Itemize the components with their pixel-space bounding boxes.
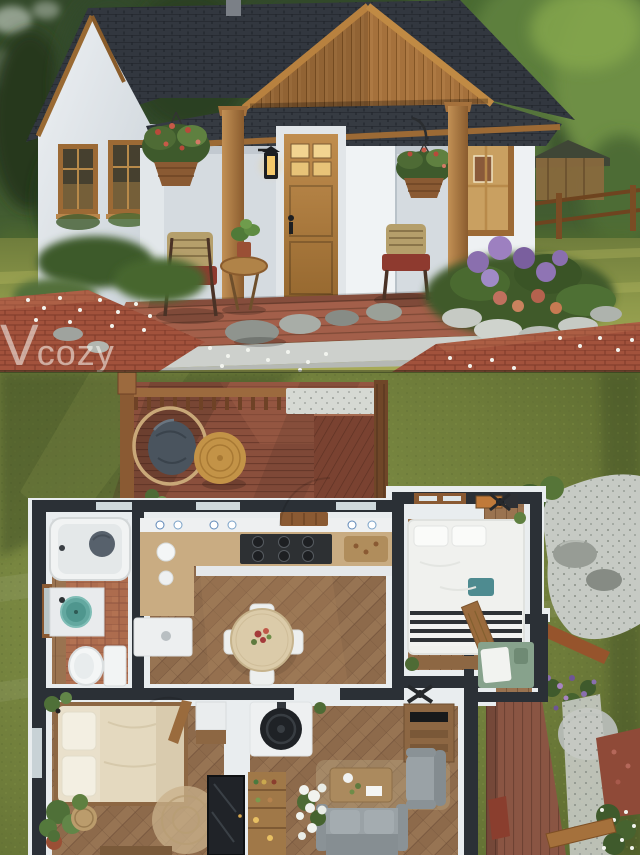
- floor-plan-render: [0, 372, 640, 855]
- bumpout-roof: [314, 414, 378, 506]
- exterior-photo: Vcozy: [0, 0, 640, 372]
- exterior-scene: [0, 0, 640, 372]
- sofa: [316, 804, 408, 855]
- section-divider: [0, 370, 640, 373]
- chimney: [226, 0, 241, 16]
- foot-chest: [100, 846, 172, 855]
- kettle: [157, 543, 175, 561]
- screenshot-root: Vcozy: [0, 0, 640, 855]
- hanging-egg-chair: [134, 408, 206, 484]
- deck-post: [118, 372, 136, 394]
- front-door: [276, 126, 346, 308]
- bed-top: [408, 520, 524, 654]
- entry-alcove: [478, 642, 534, 688]
- coffee-table: [330, 768, 392, 802]
- armchair: [406, 748, 446, 809]
- wardrobe: [196, 702, 226, 730]
- deck-fence: [374, 380, 388, 506]
- floor-plan-house: [28, 478, 550, 855]
- foot-bench: [414, 656, 488, 669]
- rear-deck: [110, 372, 388, 508]
- floor-plan-scene: [0, 372, 640, 855]
- bed-main: [54, 702, 188, 806]
- ladder-shelf: [248, 772, 286, 855]
- toilet: [69, 646, 126, 686]
- cutting-board: [344, 536, 388, 562]
- left-window: [56, 144, 100, 219]
- wood-stove: [250, 702, 312, 756]
- stove: [240, 534, 332, 564]
- display-cabinet: [208, 776, 244, 855]
